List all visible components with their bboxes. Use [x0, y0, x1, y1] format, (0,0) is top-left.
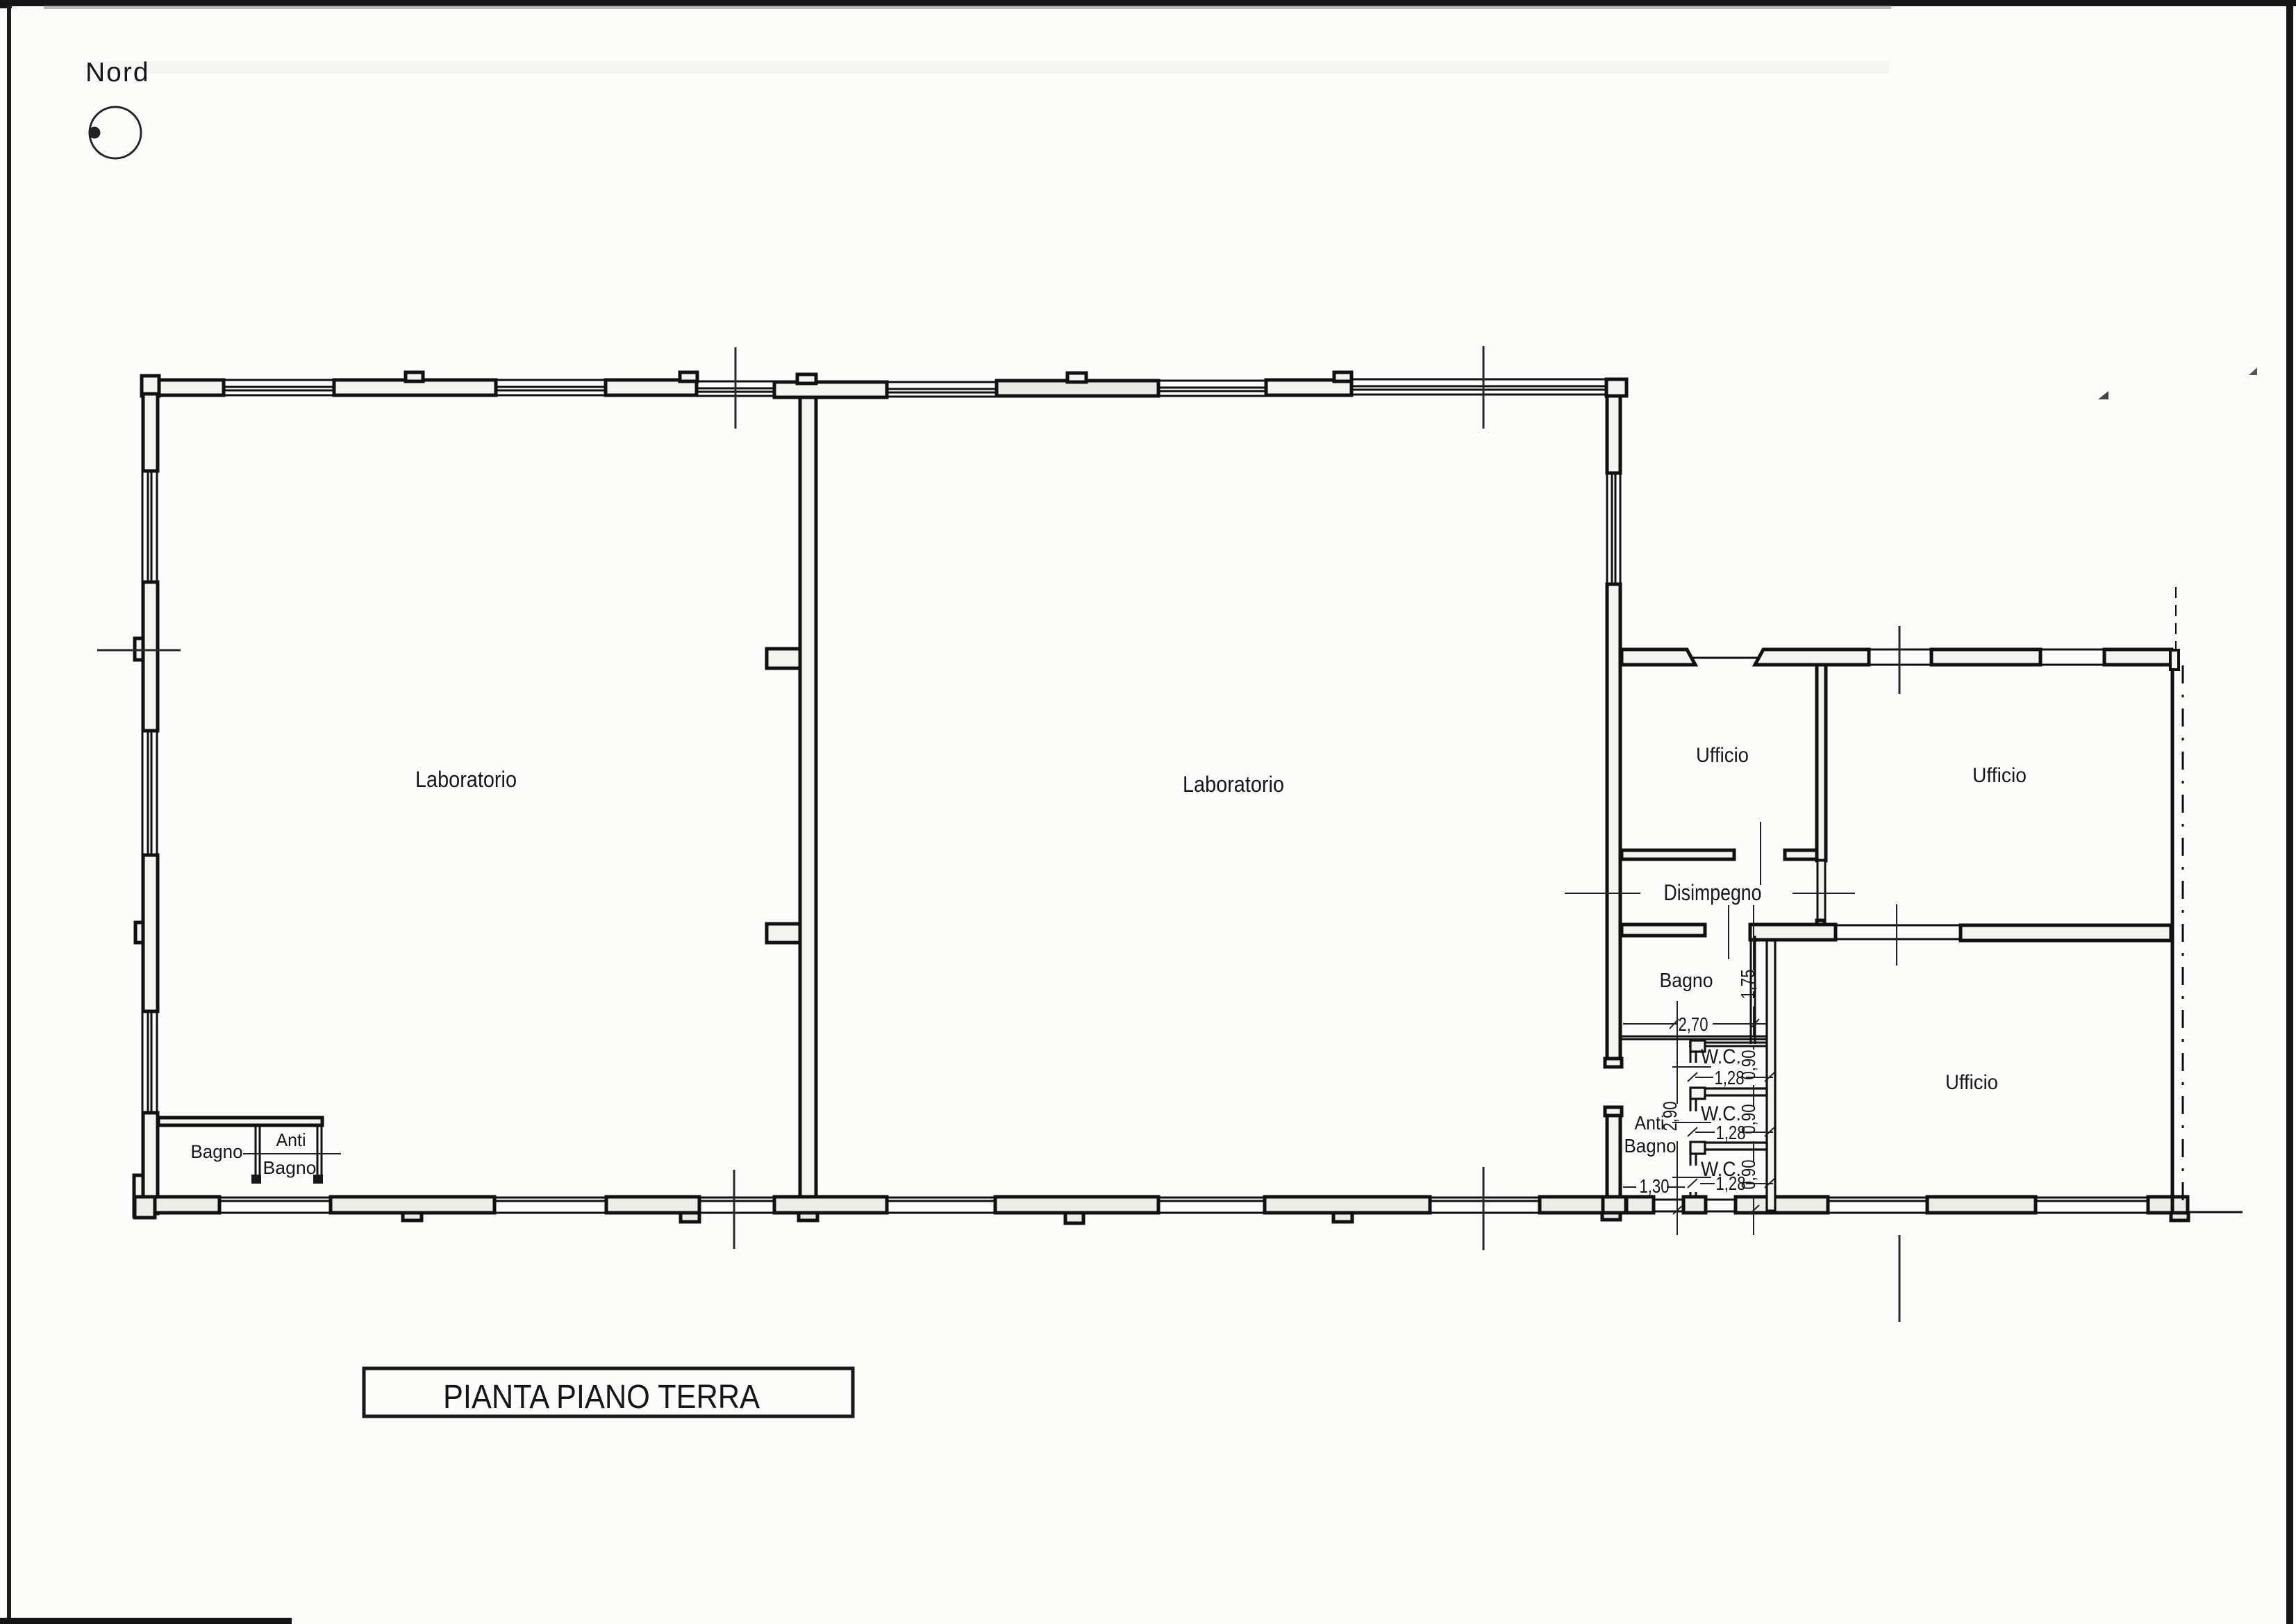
svg-text:1,28: 1,28 — [1715, 1067, 1745, 1088]
svg-text:2,90: 2,90 — [1659, 1102, 1681, 1132]
svg-text:1,30: 1,30 — [1640, 1175, 1670, 1197]
svg-text:1,75: 1,75 — [1737, 970, 1758, 1000]
svg-text:Laboratorio: Laboratorio — [1183, 772, 1284, 797]
svg-text:Bagno: Bagno — [191, 1141, 243, 1162]
svg-text:W.C.: W.C. — [1701, 1045, 1741, 1068]
svg-text:Ufficio: Ufficio — [1696, 744, 1749, 767]
svg-text:Anti: Anti — [276, 1129, 306, 1150]
svg-text:Ufficio: Ufficio — [1945, 1071, 1998, 1094]
svg-text:2,70: 2,70 — [1679, 1013, 1708, 1035]
svg-text:Ufficio: Ufficio — [1972, 764, 2027, 787]
svg-text:Bagno: Bagno — [263, 1157, 317, 1178]
svg-text:Bagno: Bagno — [1624, 1135, 1677, 1157]
svg-text:1,28: 1,28 — [1716, 1122, 1746, 1143]
svg-text:1,28: 1,28 — [1716, 1173, 1746, 1194]
svg-text:Disimpegno: Disimpegno — [1664, 880, 1762, 905]
svg-text:Nord: Nord — [85, 58, 150, 88]
svg-text:Laboratorio: Laboratorio — [415, 767, 517, 792]
svg-text:PIANTA PIANO TERRA: PIANTA PIANO TERRA — [443, 1379, 760, 1416]
svg-text:Bagno: Bagno — [1660, 970, 1713, 992]
